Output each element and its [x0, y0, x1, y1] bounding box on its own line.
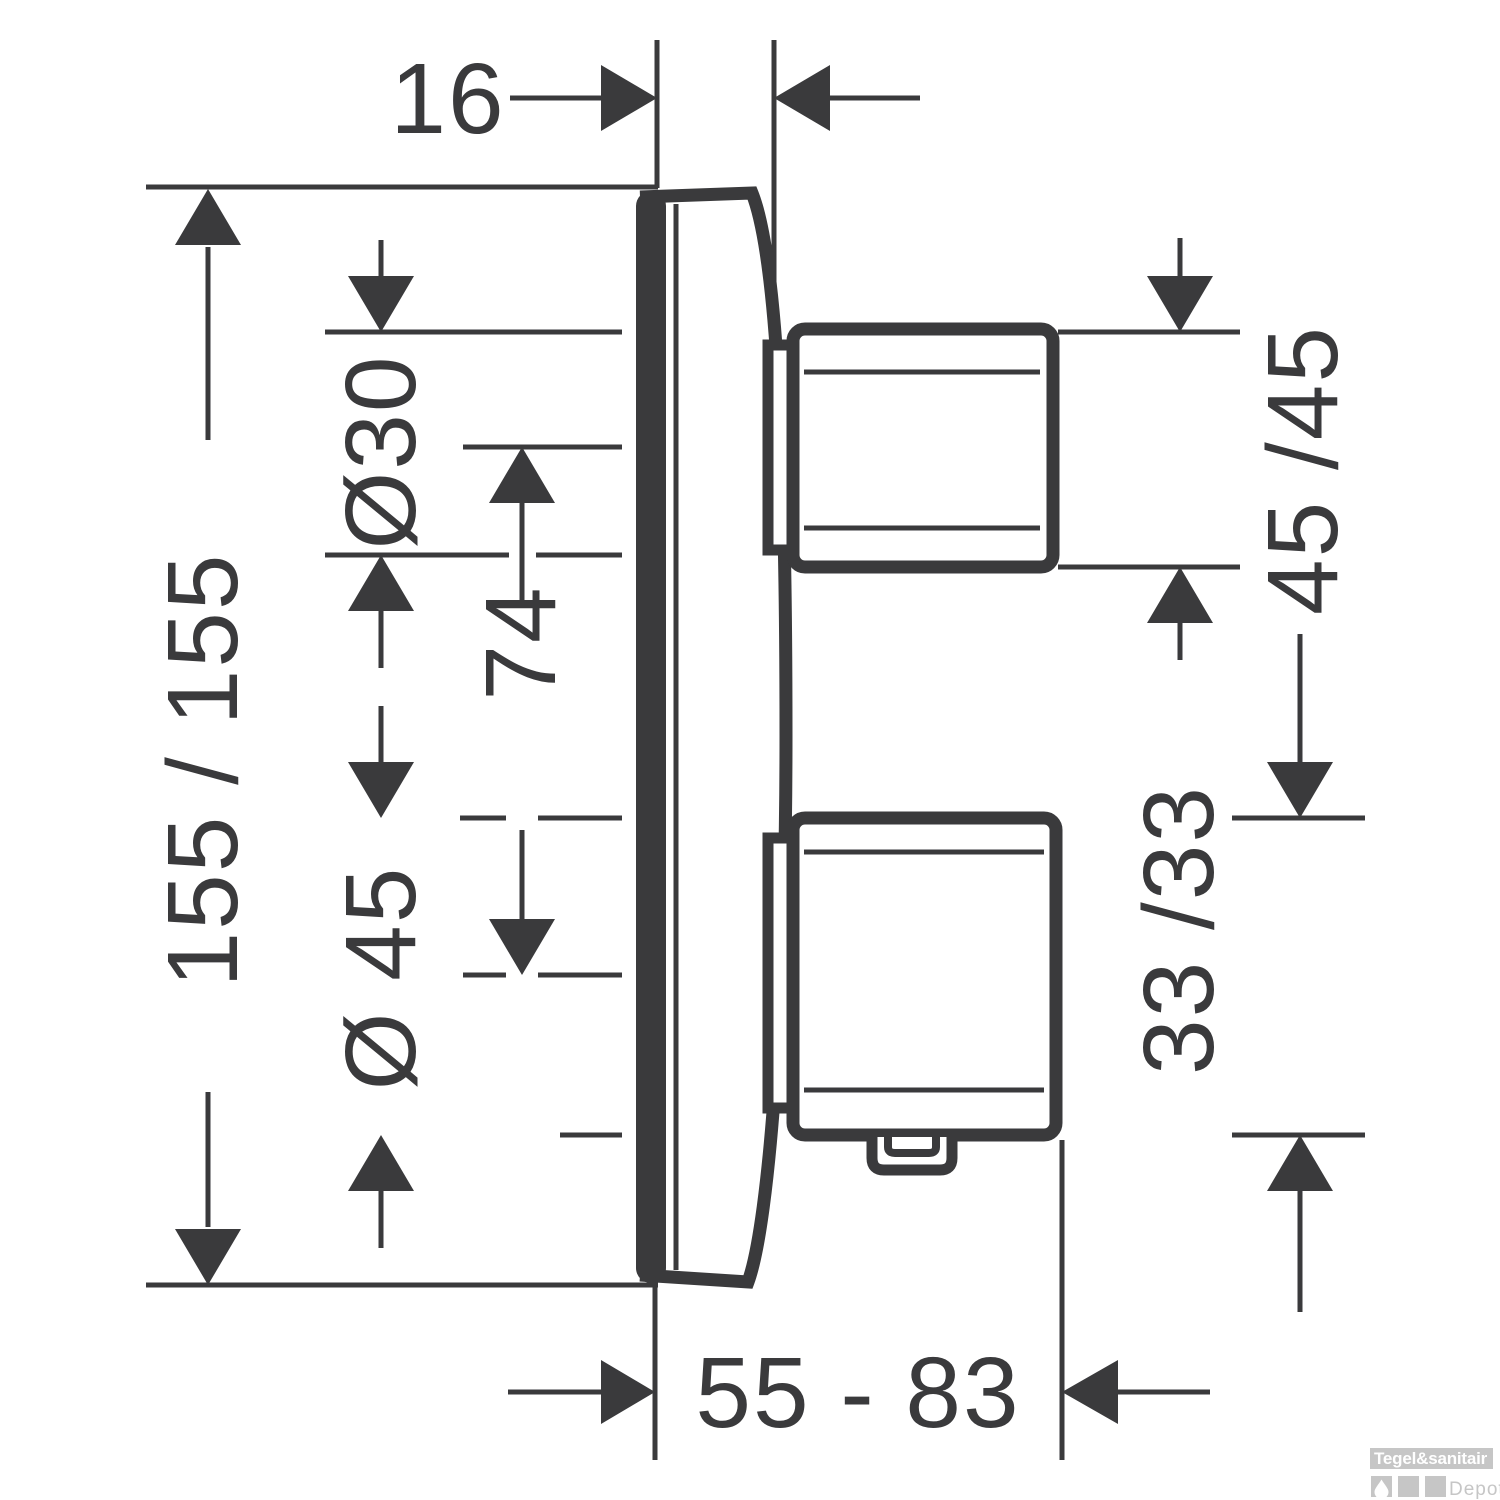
bottom-handle-tab-notch [888, 1137, 936, 1153]
arrowhead-up [348, 555, 414, 611]
mixer-dimension-drawing: 16 155 / 155 Ø30 74 Ø 45 45 /45 33 /33 5… [0, 0, 1500, 1500]
watermark-square [1398, 1476, 1419, 1497]
arrowhead-up [1267, 1135, 1333, 1191]
watermark-brand: Tegel&sanitair [1374, 1449, 1488, 1468]
watermark-sub-brand: Depot [1449, 1479, 1500, 1500]
arrowhead-down [175, 1229, 241, 1285]
dim-bottom-handle-size: 33 /33 [1123, 785, 1235, 1075]
arrowhead-down [348, 276, 414, 332]
arrowhead-down [1267, 762, 1333, 818]
arrowhead-down [489, 919, 555, 975]
dim-knob-center-distance: 74 [465, 585, 577, 700]
technical-drawing-page: 16 155 / 155 Ø30 74 Ø 45 45 /45 33 /33 5… [0, 0, 1500, 1500]
arrowhead-up [175, 189, 241, 245]
arrowhead-up [1147, 567, 1213, 623]
arrowhead-right [601, 65, 657, 131]
arrowhead-right [601, 1360, 655, 1424]
arrowhead-up [489, 447, 555, 503]
watermark: Tegel&sanitair Depot [1370, 1448, 1500, 1500]
arrowhead-left [1062, 1360, 1118, 1424]
watermark-square [1425, 1476, 1446, 1497]
dim-bottom-knob-diameter: Ø 45 [325, 866, 437, 1091]
top-handle [768, 329, 1053, 567]
arrowhead-down [1147, 276, 1213, 332]
bottom-handle [768, 818, 1056, 1170]
bottom-handle-body [793, 818, 1056, 1135]
arrowhead-up [348, 1135, 414, 1191]
top-handle-body [793, 329, 1053, 567]
dim-top-handle-size: 45 /45 [1247, 325, 1359, 615]
dim-plate-depth: 16 [390, 43, 505, 155]
dim-installation-depth: 55 - 83 [695, 1337, 1020, 1449]
arrowhead-left [774, 65, 830, 131]
dim-top-knob-diameter: Ø30 [325, 354, 437, 549]
dim-plate-size: 155 / 155 [147, 552, 259, 987]
product-outline [640, 193, 1056, 1282]
arrowhead-down [348, 762, 414, 818]
